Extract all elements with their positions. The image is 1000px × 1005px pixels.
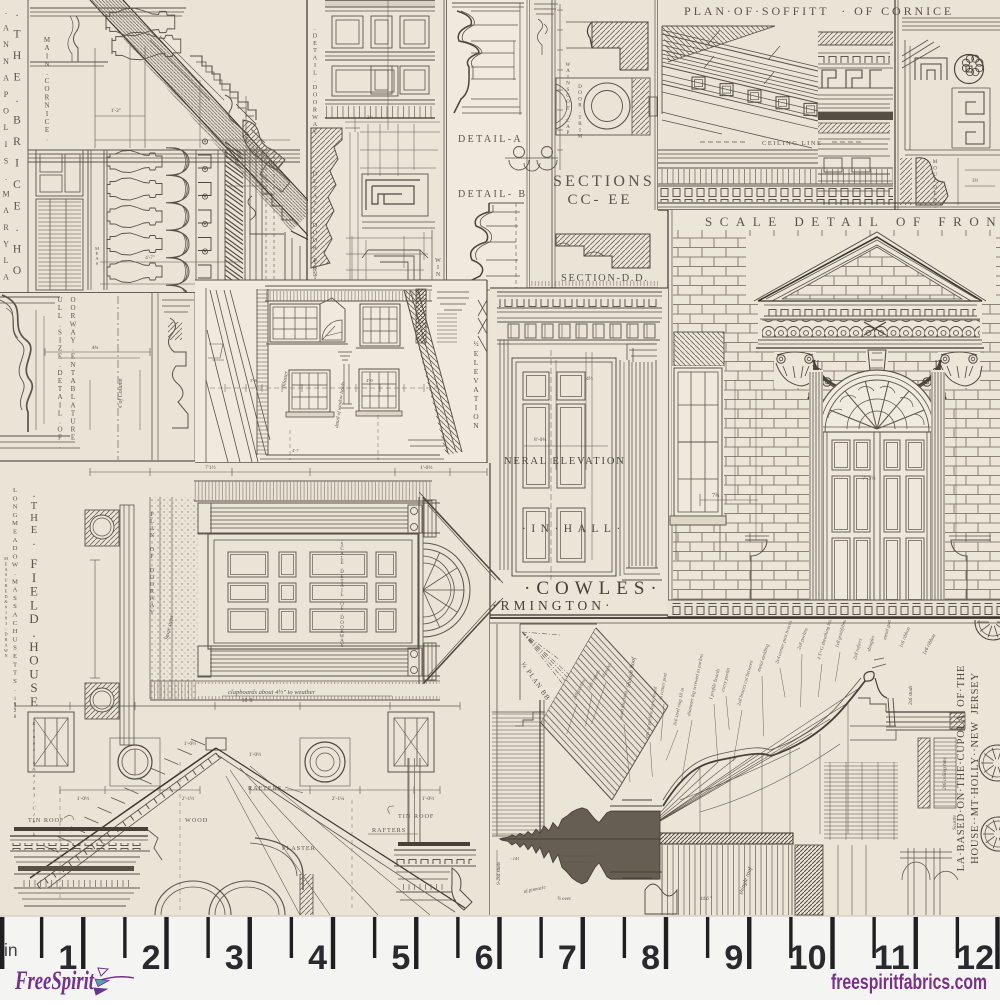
svg-text:ULL.SIZE.DETAIL.OF.: ULL.SIZE.DETAIL.OF.	[57, 296, 62, 450]
svg-text:4¾: 4¾	[92, 344, 99, 351]
svg-text:DETAIL-A: DETAIL-A	[458, 134, 523, 145]
svg-text:7'1½: 7'1½	[205, 464, 216, 471]
svg-text:1'-0½: 1'-0½	[77, 795, 89, 802]
svg-text:PLAN·OF·SOFFITT · OF CORNICE: PLAN·OF·SOFFITT · OF CORNICE	[684, 4, 954, 18]
svg-text:9: 9	[724, 939, 743, 977]
svg-text:1'-0½: 1'-0½	[249, 751, 261, 758]
svg-text:1'-0½: 1'-0½	[420, 464, 432, 471]
svg-text:TIN ROOF: TIN ROOF	[28, 817, 64, 824]
svg-text:7'-3½: 7'-3½	[862, 475, 876, 482]
svg-text:LA·BASED·ON·THE·CUPOLA OF·THE: LA·BASED·ON·THE·CUPOLA OF·THE	[956, 665, 967, 872]
svg-text:4½: 4½	[586, 375, 593, 382]
svg-text:5: 5	[391, 939, 410, 977]
svg-text:freespiritfabrics.com: freespiritfabrics.com	[831, 971, 987, 994]
svg-text:·RMINGTON·: ·RMINGTON·	[492, 598, 614, 613]
svg-text:44.6 °: 44.6 °	[700, 897, 712, 902]
svg-text:-.141: -.141	[510, 856, 519, 861]
svg-text:10: 10	[789, 939, 827, 977]
svg-text:·COWLES·: ·COWLES·	[524, 578, 663, 599]
svg-text:CC- EE: CC- EE	[567, 192, 632, 208]
svg-text:10-8: 10-8	[242, 698, 253, 704]
svg-text:NERAL ELEVATION: NERAL ELEVATION	[504, 456, 626, 467]
svg-text:WAINSCOT.CAP: WAINSCOT.CAP	[566, 62, 571, 136]
svg-text:WOOD: WOOD	[185, 817, 208, 824]
svg-text:7: 7	[558, 939, 577, 977]
svg-text:SECTIONS: SECTIONS	[553, 173, 655, 190]
svg-text:3: 3	[225, 939, 244, 977]
svg-text:7¾: 7¾	[712, 492, 720, 499]
svg-text:in: in	[4, 940, 18, 960]
svg-text:RAFTERS: RAFTERS	[372, 827, 406, 834]
svg-text:9-2x4 studs: 9-2x4 studs	[497, 862, 502, 885]
svg-text:4: 4	[308, 939, 327, 977]
svg-text:¢ of Column: ¢ of Column	[117, 378, 124, 408]
svg-text:6: 6	[475, 939, 494, 977]
svg-text:3½: 3½	[972, 179, 979, 184]
svg-text:2x6 studs: 2x6 studs	[908, 686, 914, 705]
svg-text:2'-1½: 2'-1½	[182, 795, 194, 802]
svg-text:8'-0¾: 8'-0¾	[534, 436, 546, 443]
svg-text:4'-7: 4'-7	[292, 448, 300, 453]
svg-text:4'-0: 4'-0	[366, 378, 374, 383]
svg-text:1'-0½: 1'-0½	[422, 795, 434, 802]
svg-text:3'-6: 3'-6	[250, 378, 258, 383]
svg-text:FreeSpirit: FreeSpirit	[14, 966, 94, 995]
svg-text:2¼: 2¼	[367, 116, 374, 121]
svg-text:clapboards about 4½" to weathe: clapboards about 4½" to weather	[228, 689, 316, 696]
svg-text:4'-7": 4'-7"	[145, 256, 155, 261]
svg-text:1'-0½: 1'-0½	[184, 740, 196, 747]
svg-text:2'-1¼: 2'-1¼	[332, 796, 344, 802]
svg-text:PLASTER: PLASTER	[282, 845, 316, 852]
svg-text:CEILING LINE: CEILING LINE	[762, 140, 822, 147]
svg-text:2x6 ceiling bms: 2x6 ceiling bms	[942, 757, 948, 790]
svg-text:·IN·HALL·: ·IN·HALL·	[522, 523, 626, 535]
svg-text:SCALE DETAIL OF FRONT: SCALE DETAIL OF FRONT	[705, 214, 1000, 229]
svg-text:1'-2": 1'-2"	[111, 108, 122, 114]
svg-text:½: ½	[473, 340, 478, 348]
svg-text:¾ over.: ¾ over.	[557, 897, 572, 902]
svg-text:8: 8	[641, 939, 660, 977]
svg-text:RAFTERS: RAFTERS	[248, 785, 282, 792]
svg-text:DETAIL- B: DETAIL- B	[458, 189, 527, 200]
svg-text:2: 2	[142, 939, 161, 977]
svg-text:HOUSE··MT·HOLLY··NEW JERSEY: HOUSE··MT·HOLLY··NEW JERSEY	[970, 672, 981, 864]
